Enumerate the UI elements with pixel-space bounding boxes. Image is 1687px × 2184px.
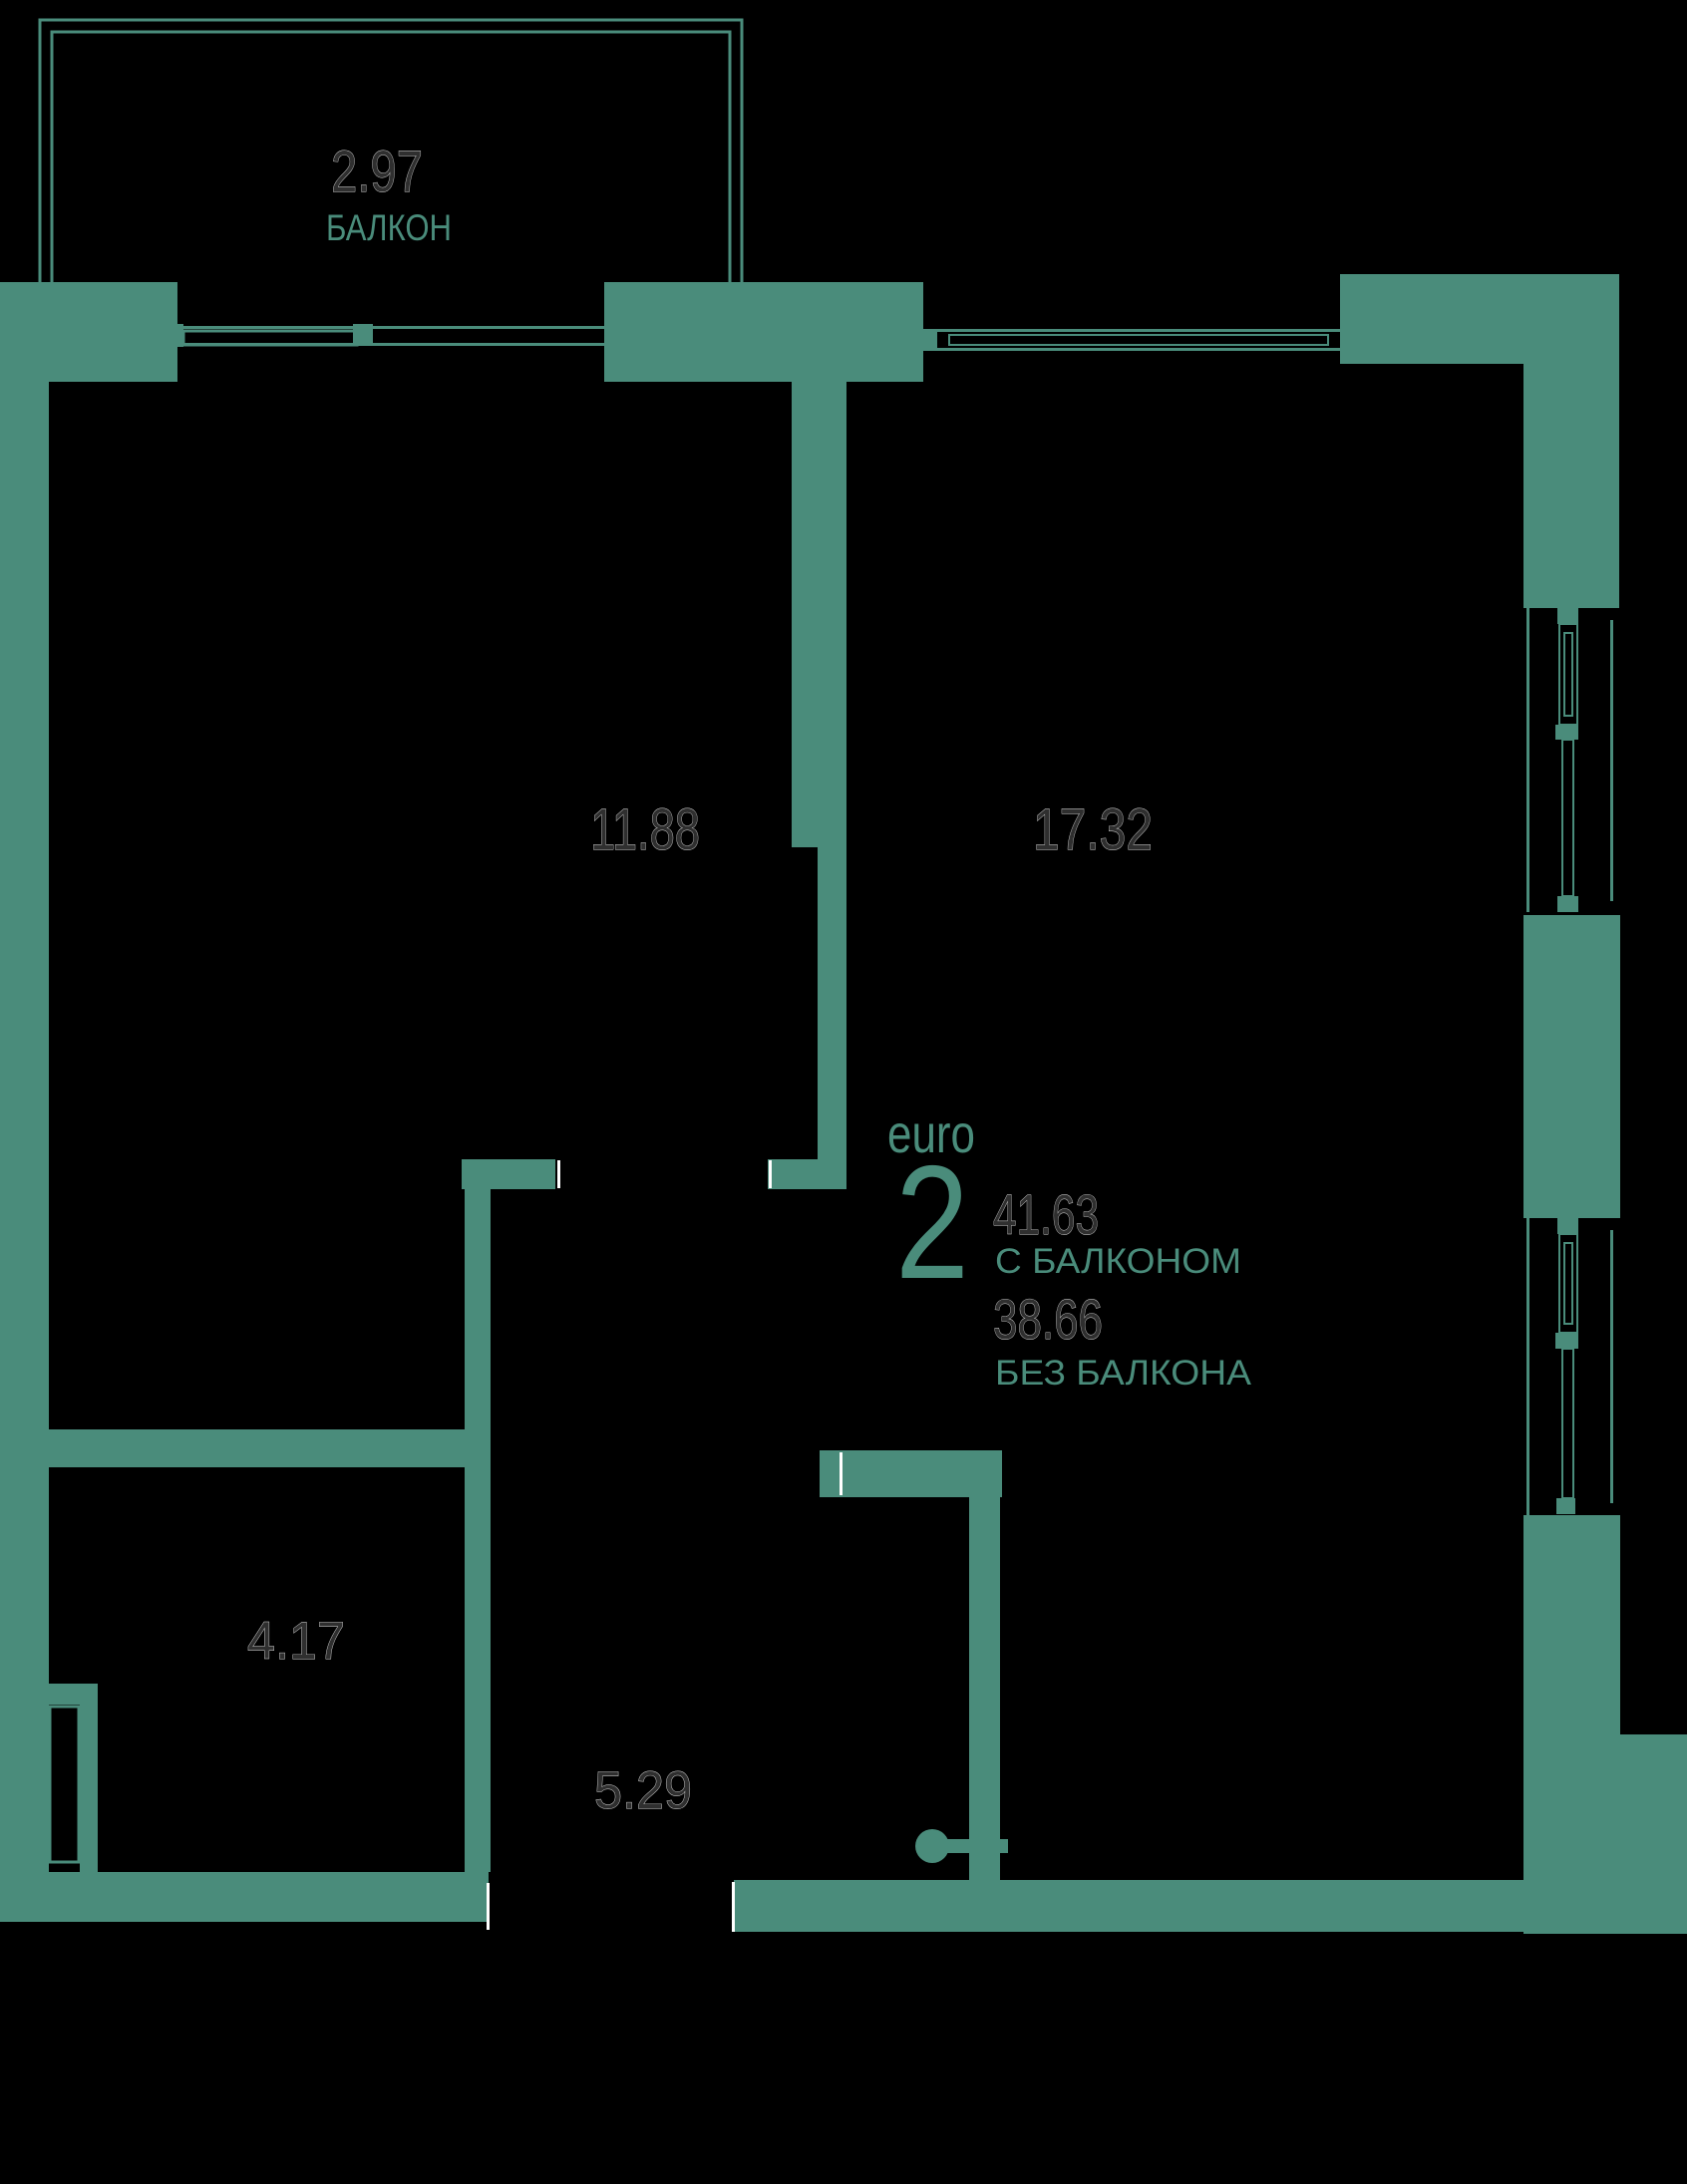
wall-bottom-left (0, 1872, 489, 1922)
wall-left (0, 282, 49, 1907)
wall-bathroom-top (0, 1429, 465, 1467)
window-bracket (1556, 1498, 1575, 1514)
area-with-balcony-caption: С БАЛКОНОМ (995, 1242, 1241, 1281)
wall-bottom-right (734, 1880, 1523, 1932)
wall-left-door-jamb-bar (80, 1705, 98, 1872)
door-leaf-outline (50, 1707, 79, 1862)
unit-info: euro 2 41.63 С БАЛКОНОМ 38.66 БЕЗ БАЛКОН… (887, 1104, 1252, 1393)
balcony-area-label: 2.97 (331, 140, 423, 204)
window-sash (1559, 624, 1577, 725)
unit-rooms-count: 2 (895, 1132, 969, 1313)
window-sash (1562, 740, 1573, 896)
wall-hall-left-cap (462, 1159, 555, 1189)
window-bracket (1557, 1218, 1578, 1234)
left-wall-door (50, 1707, 79, 1862)
room-labels: 2.97 БАЛКОН 11.88 17.32 4.17 5.29 (247, 140, 1153, 1820)
window-line-bottom (937, 348, 1340, 351)
bedroom-area-label: 17.32 (1033, 797, 1153, 862)
window-pane (949, 335, 1328, 345)
area-without-balcony-caption: БЕЗ БАЛКОНА (995, 1354, 1252, 1393)
wall-right-upper (1523, 274, 1619, 608)
window-reveal-inner (1526, 608, 1529, 912)
wall-right-middle (1523, 915, 1620, 1218)
living-room-area-label: 11.88 (590, 797, 700, 862)
jamb-mark (840, 1452, 843, 1495)
hallway-area-label: 5.29 (594, 1761, 692, 1820)
window-bracket (1555, 725, 1578, 740)
area-without-balcony-value: 38.66 (993, 1288, 1103, 1352)
jamb-mark (769, 1160, 772, 1188)
balcony-door-track-top (177, 326, 604, 329)
jamb-mark (732, 1882, 735, 1932)
window-reveal-outer (1610, 620, 1613, 901)
right-wall-window-upper (1526, 608, 1613, 912)
door-handle-stem (947, 1839, 971, 1853)
wall-top-center-pier (604, 282, 923, 382)
wall-right-bottom-wide (1523, 1734, 1687, 1934)
walls (0, 274, 1687, 1934)
window-sash-inner (1564, 633, 1572, 716)
window-bracket (1557, 608, 1578, 624)
wall-middle-foot (768, 1159, 846, 1189)
balcony-door-leaf (183, 331, 357, 345)
jamb-mark (557, 1160, 560, 1188)
bedroom-top-window (915, 329, 1362, 351)
window-reveal-outer (1610, 1230, 1613, 1503)
area-with-balcony-value: 41.63 (993, 1183, 1099, 1247)
wall-right-lower (1523, 1515, 1620, 1736)
balcony-door-post-mid (353, 324, 373, 344)
wall-left-door-stub (49, 1684, 98, 1705)
bathroom-area-label: 4.17 (247, 1612, 345, 1671)
balcony-door-post-left (166, 324, 183, 347)
wall-hall-left (465, 1189, 491, 1872)
door-handle-icon (915, 1829, 949, 1863)
window-sash (1562, 1349, 1573, 1498)
balcony-door (166, 324, 604, 347)
window-bracket (1557, 896, 1578, 912)
door-handle-nub (998, 1839, 1008, 1853)
wall-hall-right-bar (820, 1450, 1002, 1497)
wall-hall-right (969, 1497, 1000, 1880)
wall-middle-upper (792, 382, 846, 847)
window-sash-inner (1564, 1243, 1572, 1324)
window-bracket (915, 329, 937, 351)
jamb-mark (487, 1883, 490, 1930)
balcony-name-label: БАЛКОН (326, 207, 452, 248)
wall-middle-lower (818, 847, 846, 1159)
window-bracket (1555, 1333, 1578, 1349)
window-sash (1559, 1234, 1577, 1333)
window-bracket (1340, 329, 1362, 351)
floor-plan: 2.97 БАЛКОН 11.88 17.32 4.17 5.29 euro 2… (0, 0, 1687, 2184)
window-line-top (937, 329, 1340, 332)
right-wall-window-lower (1526, 1218, 1613, 1515)
window-reveal-inner (1526, 1218, 1529, 1515)
